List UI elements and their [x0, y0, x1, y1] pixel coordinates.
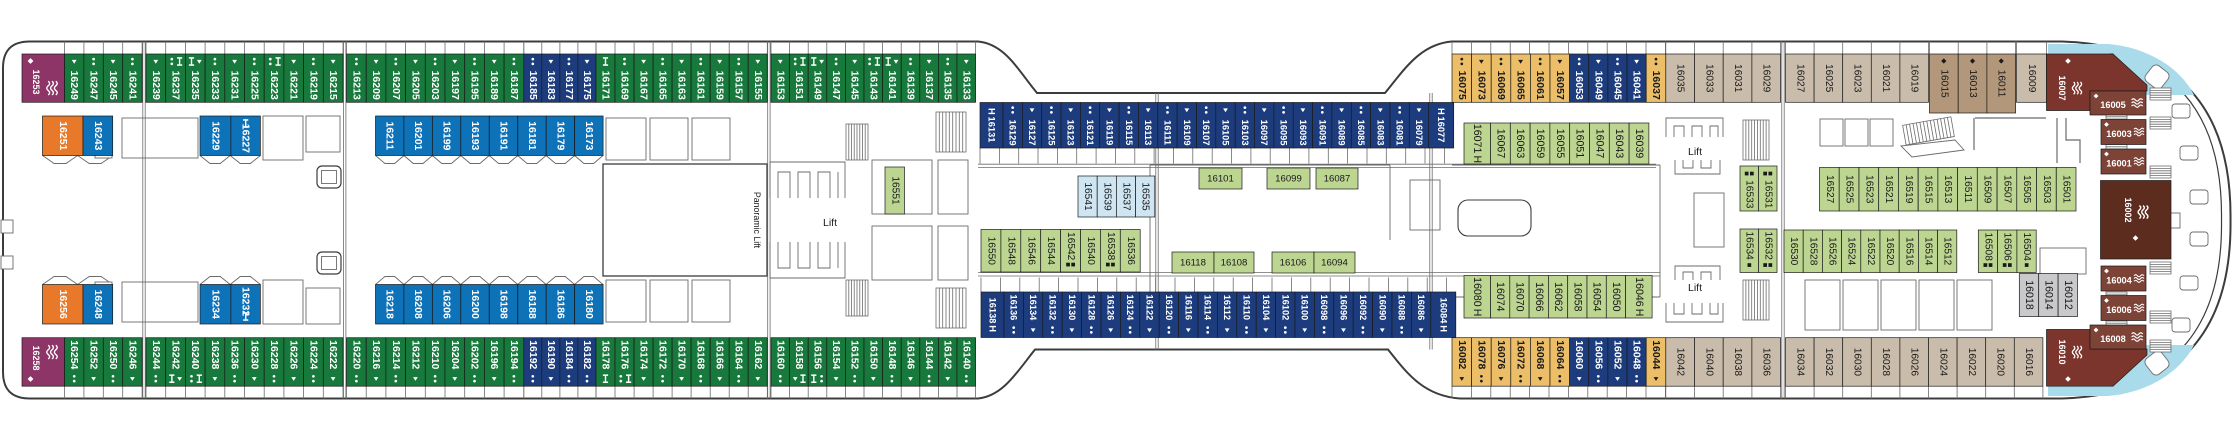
svg-text:16060: 16060 [1573, 340, 1585, 369]
svg-text:16056: 16056 [1592, 340, 1604, 369]
svg-text:16513: 16513 [1942, 175, 1953, 204]
svg-text:16023: 16023 [1852, 64, 1863, 93]
svg-text:16127: 16127 [1027, 120, 1037, 146]
svg-text:16041: 16041 [1631, 71, 1643, 100]
svg-text:16174: 16174 [638, 340, 650, 369]
svg-text:16126: 16126 [1106, 294, 1116, 320]
svg-text:16035: 16035 [1675, 64, 1686, 93]
svg-text:16098: 16098 [1319, 294, 1329, 320]
svg-text:16248: 16248 [92, 290, 104, 319]
svg-text:16534: 16534 [1744, 232, 1755, 261]
svg-text:16146: 16146 [905, 340, 917, 369]
svg-text:16066: 16066 [1533, 282, 1545, 312]
svg-text:16176: 16176 [619, 340, 631, 369]
svg-text:16548: 16548 [1005, 237, 1016, 266]
svg-text:16196: 16196 [488, 340, 500, 369]
svg-text:16080 H: 16080 H [1471, 277, 1483, 316]
svg-text:16536: 16536 [1125, 237, 1136, 266]
svg-text:16192: 16192 [527, 340, 539, 369]
svg-text:16200: 16200 [469, 290, 481, 319]
svg-text:16152: 16152 [849, 340, 861, 369]
svg-text:16076: 16076 [1495, 340, 1507, 369]
svg-text:16015: 16015 [1938, 69, 1949, 98]
svg-text:16120: 16120 [1164, 294, 1174, 320]
svg-text:16099: 16099 [1275, 174, 1302, 185]
svg-text:16002: 16002 [2123, 197, 2133, 222]
svg-text:16167: 16167 [638, 71, 650, 100]
svg-text:16143: 16143 [867, 71, 879, 100]
svg-text:16016: 16016 [2023, 348, 2034, 377]
svg-text:16009: 16009 [2026, 64, 2037, 93]
svg-text:16156: 16156 [812, 340, 824, 369]
svg-text:16078: 16078 [1475, 340, 1487, 369]
svg-text:16241: 16241 [126, 71, 138, 100]
svg-text:16044: 16044 [1650, 340, 1662, 369]
svg-text:16088: 16088 [1397, 294, 1407, 320]
svg-text:16166: 16166 [714, 340, 726, 369]
svg-text:16229: 16229 [209, 121, 221, 150]
svg-text:16074: 16074 [1494, 282, 1506, 312]
svg-text:16243: 16243 [92, 121, 104, 150]
svg-text:16158: 16158 [793, 340, 805, 369]
svg-text:16206: 16206 [441, 290, 453, 319]
svg-text:16182: 16182 [581, 340, 593, 369]
svg-text:16095: 16095 [1279, 120, 1289, 146]
svg-text:16102: 16102 [1280, 294, 1290, 320]
svg-text:16091: 16091 [1317, 120, 1327, 146]
svg-text:16228: 16228 [268, 340, 280, 369]
svg-text:16164: 16164 [733, 340, 745, 369]
svg-text:16073: 16073 [1475, 71, 1487, 100]
svg-text:16240: 16240 [189, 340, 201, 369]
svg-text:16067: 16067 [1494, 129, 1506, 159]
svg-text:16082: 16082 [1456, 340, 1468, 369]
svg-text:16086: 16086 [1416, 294, 1426, 320]
svg-text:16012: 16012 [2062, 280, 2074, 310]
svg-text:16237: 16237 [170, 71, 182, 100]
svg-text:16159: 16159 [714, 71, 726, 100]
svg-text:16132: 16132 [1048, 294, 1058, 320]
svg-text:16063: 16063 [1514, 129, 1526, 159]
svg-text:16222: 16222 [327, 340, 339, 369]
svg-text:16068: 16068 [1534, 340, 1546, 369]
svg-text:16108: 16108 [1221, 258, 1248, 269]
svg-text:16045: 16045 [1612, 71, 1624, 100]
svg-text:16055: 16055 [1554, 129, 1566, 159]
svg-text:16190: 16190 [545, 340, 557, 369]
svg-text:16106: 16106 [1280, 258, 1307, 269]
svg-text:16144: 16144 [923, 340, 935, 369]
svg-text:16198: 16198 [498, 290, 510, 319]
svg-text:16135: 16135 [942, 71, 954, 100]
svg-text:16230: 16230 [248, 340, 260, 369]
svg-text:16236: 16236 [229, 340, 241, 369]
svg-text:16083: 16083 [1375, 120, 1385, 146]
svg-text:16202: 16202 [469, 340, 481, 369]
svg-text:16180: 16180 [583, 290, 595, 319]
svg-text:16256: 16256 [57, 290, 69, 319]
svg-text:16113: 16113 [1143, 120, 1153, 145]
svg-text:16134: 16134 [1028, 294, 1038, 321]
svg-text:16523: 16523 [1863, 175, 1874, 204]
svg-text:16029: 16029 [1761, 64, 1772, 93]
svg-text:16188: 16188 [526, 290, 538, 319]
svg-text:16504: 16504 [2021, 233, 2032, 262]
svg-text:16507: 16507 [2001, 175, 2012, 204]
svg-text:16506: 16506 [2002, 233, 2013, 262]
svg-text:16521: 16521 [1883, 175, 1894, 204]
svg-text:16524: 16524 [1846, 237, 1857, 266]
svg-text:16226: 16226 [288, 340, 300, 369]
svg-text:16211: 16211 [384, 121, 396, 150]
svg-text:16250: 16250 [107, 340, 119, 369]
svg-text:16039: 16039 [1633, 129, 1645, 159]
svg-text:16224: 16224 [307, 340, 319, 369]
svg-text:H 16131: H 16131 [987, 108, 997, 142]
svg-text:16207: 16207 [390, 71, 402, 100]
svg-text:16514: 16514 [1923, 237, 1934, 266]
svg-text:16061: 16061 [1534, 71, 1546, 100]
svg-text:16199: 16199 [441, 121, 453, 150]
svg-text:16546: 16546 [1025, 237, 1036, 266]
svg-text:16251: 16251 [57, 121, 69, 150]
svg-text:16157: 16157 [733, 71, 745, 100]
svg-text:Lift: Lift [1688, 146, 1702, 158]
svg-text:16141: 16141 [886, 71, 898, 100]
svg-text:16137: 16137 [923, 71, 935, 100]
svg-text:16169: 16169 [619, 71, 631, 100]
svg-text:16025: 16025 [1823, 64, 1834, 93]
svg-text:16245: 16245 [107, 71, 119, 100]
svg-text:16550: 16550 [986, 237, 997, 266]
svg-text:16184: 16184 [563, 340, 575, 369]
svg-text:16030: 16030 [1852, 348, 1863, 377]
svg-text:16139: 16139 [905, 71, 917, 100]
svg-text:16084 H: 16084 H [1438, 298, 1448, 333]
svg-text:16071 H: 16071 H [1471, 124, 1483, 163]
svg-text:16186: 16186 [554, 290, 566, 319]
svg-text:16129: 16129 [1008, 120, 1018, 146]
svg-text:16072: 16072 [1515, 340, 1527, 369]
svg-text:16087: 16087 [1324, 174, 1351, 185]
svg-text:16101: 16101 [1207, 174, 1234, 185]
svg-text:16022: 16022 [1966, 348, 1977, 377]
svg-text:16104: 16104 [1261, 294, 1271, 321]
svg-text:16181: 16181 [526, 121, 538, 150]
svg-text:16522: 16522 [1865, 237, 1876, 266]
svg-text:16014: 16014 [2042, 280, 2054, 310]
svg-text:16124: 16124 [1125, 294, 1135, 321]
svg-text:16054: 16054 [1591, 282, 1603, 312]
svg-text:16501: 16501 [2061, 175, 2072, 204]
svg-text:16079: 16079 [1414, 120, 1424, 146]
svg-text:16059: 16059 [1534, 129, 1546, 159]
svg-text:16231: 16231 [229, 71, 241, 100]
svg-text:16195: 16195 [469, 71, 481, 100]
svg-text:16100: 16100 [1300, 294, 1310, 320]
svg-text:16097: 16097 [1259, 120, 1269, 146]
svg-text:16010: 16010 [2057, 339, 2067, 364]
svg-text:16138 H: 16138 H [988, 298, 998, 333]
svg-text:16235: 16235 [189, 71, 201, 100]
svg-text:16111: 16111 [1163, 120, 1173, 145]
svg-text:16175: 16175 [581, 71, 593, 100]
svg-text:16115: 16115 [1124, 120, 1134, 145]
svg-text:16197: 16197 [449, 71, 461, 100]
svg-text:16049: 16049 [1592, 71, 1604, 100]
svg-text:16220: 16220 [350, 340, 362, 369]
svg-text:16027: 16027 [1794, 64, 1805, 93]
svg-text:16539: 16539 [1101, 182, 1112, 211]
svg-text:16252: 16252 [88, 340, 100, 369]
svg-text:16540: 16540 [1085, 237, 1096, 266]
svg-text:16528: 16528 [1807, 237, 1818, 266]
svg-text:16147: 16147 [830, 71, 842, 100]
svg-text:16242: 16242 [170, 340, 182, 369]
svg-text:16058: 16058 [1571, 282, 1583, 312]
svg-text:H 16077: H 16077 [1436, 108, 1446, 142]
svg-text:16515: 16515 [1923, 175, 1934, 204]
svg-text:16034: 16034 [1794, 348, 1805, 377]
svg-text:16238: 16238 [209, 340, 221, 369]
svg-text:16122: 16122 [1145, 294, 1155, 320]
svg-text:16160: 16160 [774, 340, 786, 369]
svg-text:16075: 16075 [1456, 71, 1468, 100]
svg-text:16001: 16001 [2106, 159, 2132, 169]
svg-text:16234: 16234 [209, 290, 221, 319]
svg-text:16161: 16161 [695, 71, 707, 100]
svg-text:16223: 16223 [268, 71, 280, 100]
svg-text:16194: 16194 [508, 340, 520, 369]
svg-text:16183: 16183 [545, 71, 557, 100]
svg-text:16116: 16116 [1183, 295, 1193, 320]
svg-text:16107: 16107 [1201, 120, 1211, 146]
svg-text:16214: 16214 [390, 340, 402, 369]
svg-text:16119: 16119 [1104, 120, 1114, 145]
svg-text:16133: 16133 [960, 71, 972, 100]
svg-text:16178: 16178 [600, 340, 612, 369]
svg-text:16232: 16232 [240, 287, 252, 316]
svg-text:16258: 16258 [31, 345, 41, 370]
svg-text:16254: 16254 [68, 340, 80, 369]
svg-text:16551: 16551 [889, 176, 900, 205]
svg-text:16527: 16527 [1824, 175, 1835, 204]
svg-text:16020: 16020 [1995, 348, 2006, 377]
svg-text:16042: 16042 [1675, 348, 1686, 377]
svg-text:16145: 16145 [849, 71, 861, 100]
svg-text:16193: 16193 [469, 121, 481, 150]
svg-text:16173: 16173 [583, 121, 595, 150]
svg-text:16542: 16542 [1065, 232, 1076, 261]
svg-text:16110: 16110 [1242, 295, 1252, 320]
svg-text:16069: 16069 [1495, 71, 1507, 100]
svg-text:16148: 16148 [886, 340, 898, 369]
svg-text:16537: 16537 [1121, 182, 1132, 211]
svg-text:16203: 16203 [429, 71, 441, 100]
svg-text:16532: 16532 [1762, 232, 1773, 261]
svg-text:16189: 16189 [488, 71, 500, 100]
svg-text:16011: 16011 [1996, 70, 2007, 98]
svg-text:16052: 16052 [1612, 340, 1624, 369]
svg-text:16505: 16505 [2021, 175, 2032, 204]
svg-text:16244: 16244 [150, 340, 162, 369]
svg-text:16201: 16201 [412, 121, 424, 150]
svg-text:16215: 16215 [327, 71, 339, 100]
svg-text:16004: 16004 [2106, 276, 2132, 286]
svg-text:16013: 16013 [1967, 69, 1978, 98]
svg-text:16535: 16535 [1140, 182, 1151, 211]
svg-text:16151: 16151 [793, 71, 805, 100]
svg-text:16213: 16213 [350, 71, 362, 100]
svg-text:16165: 16165 [657, 71, 669, 100]
svg-text:16168: 16168 [695, 340, 707, 369]
svg-text:16149: 16149 [812, 71, 824, 100]
svg-text:16533: 16533 [1744, 180, 1755, 209]
svg-text:16118: 16118 [1180, 258, 1206, 269]
svg-text:16216: 16216 [370, 340, 382, 369]
svg-text:16239: 16239 [150, 71, 162, 100]
svg-text:16249: 16249 [68, 71, 80, 100]
svg-text:16208: 16208 [412, 290, 424, 319]
svg-text:16520: 16520 [1884, 237, 1895, 266]
svg-text:16062: 16062 [1552, 282, 1564, 312]
svg-text:16105: 16105 [1221, 120, 1231, 146]
svg-text:16503: 16503 [2041, 175, 2052, 204]
svg-text:16021: 16021 [1880, 64, 1891, 93]
svg-text:16003: 16003 [2106, 129, 2132, 139]
svg-text:16210: 16210 [429, 340, 441, 369]
svg-text:16046 H: 16046 H [1633, 277, 1645, 316]
svg-text:16036: 16036 [1761, 348, 1772, 377]
svg-text:16005: 16005 [2100, 100, 2126, 110]
svg-text:16516: 16516 [1903, 237, 1914, 266]
svg-text:16096: 16096 [1339, 294, 1349, 320]
svg-text:16163: 16163 [676, 71, 688, 100]
svg-text:16538: 16538 [1105, 232, 1116, 261]
svg-text:16253: 16253 [31, 69, 41, 94]
svg-text:16247: 16247 [88, 71, 100, 100]
svg-text:16233: 16233 [209, 71, 221, 100]
svg-text:16070: 16070 [1514, 282, 1526, 312]
svg-text:16204: 16204 [449, 340, 461, 369]
svg-text:16109: 16109 [1182, 120, 1192, 146]
svg-text:16526: 16526 [1827, 237, 1838, 266]
svg-text:16089: 16089 [1337, 120, 1347, 146]
svg-text:16541: 16541 [1082, 182, 1093, 211]
svg-text:16026: 16026 [1909, 348, 1920, 377]
svg-text:16171: 16171 [600, 71, 612, 100]
svg-text:16530: 16530 [1788, 237, 1799, 266]
svg-text:16008: 16008 [2100, 334, 2126, 344]
svg-text:16018: 16018 [2023, 280, 2035, 310]
svg-text:16225: 16225 [248, 71, 260, 100]
svg-text:16179: 16179 [554, 121, 566, 150]
svg-text:Panoramic Lift: Panoramic Lift [752, 192, 762, 249]
svg-text:16028: 16028 [1880, 348, 1891, 377]
svg-text:16019: 16019 [1909, 64, 1920, 93]
svg-text:16043: 16043 [1613, 129, 1625, 159]
svg-text:16185: 16185 [527, 71, 539, 100]
svg-text:16128: 16128 [1086, 294, 1096, 320]
svg-text:16112: 16112 [1222, 295, 1232, 320]
svg-text:16162: 16162 [752, 340, 764, 369]
svg-text:16227: 16227 [240, 124, 252, 153]
svg-text:16121: 16121 [1085, 120, 1095, 146]
svg-text:16544: 16544 [1045, 237, 1056, 266]
svg-text:16508: 16508 [1983, 233, 1994, 262]
svg-text:16053: 16053 [1573, 71, 1585, 100]
svg-text:16155: 16155 [752, 71, 764, 100]
svg-text:16065: 16065 [1515, 71, 1527, 100]
svg-text:16085: 16085 [1356, 120, 1366, 146]
svg-text:16081: 16081 [1395, 120, 1405, 146]
svg-text:16123: 16123 [1066, 120, 1076, 146]
svg-text:16064: 16064 [1554, 340, 1566, 369]
svg-text:16114: 16114 [1203, 295, 1213, 321]
svg-text:16170: 16170 [676, 340, 688, 369]
svg-text:16037: 16037 [1650, 71, 1662, 100]
svg-text:16205: 16205 [409, 71, 421, 100]
svg-text:16221: 16221 [288, 71, 300, 100]
svg-text:16092: 16092 [1358, 294, 1368, 320]
svg-text:16172: 16172 [657, 340, 669, 369]
svg-text:16140: 16140 [960, 340, 972, 369]
svg-text:16007: 16007 [2057, 75, 2067, 100]
svg-text:16511: 16511 [1962, 175, 1973, 203]
svg-text:16038: 16038 [1732, 348, 1743, 377]
svg-text:16090: 16090 [1377, 294, 1387, 320]
svg-text:16142: 16142 [942, 340, 954, 369]
svg-text:16093: 16093 [1298, 120, 1308, 146]
svg-text:16218: 16218 [384, 290, 396, 319]
svg-text:16006: 16006 [2106, 305, 2132, 315]
svg-text:Lift: Lift [823, 217, 837, 229]
svg-text:16057: 16057 [1554, 71, 1566, 100]
svg-text:16048: 16048 [1631, 340, 1643, 369]
svg-text:16509: 16509 [1982, 175, 1993, 204]
svg-text:16032: 16032 [1823, 348, 1834, 377]
svg-text:16246: 16246 [126, 340, 138, 369]
svg-text:16187: 16187 [508, 71, 520, 100]
svg-text:16051: 16051 [1574, 129, 1586, 159]
svg-text:16525: 16525 [1844, 175, 1855, 204]
svg-text:16154: 16154 [830, 340, 842, 369]
svg-text:16150: 16150 [867, 340, 879, 369]
svg-text:16209: 16209 [370, 71, 382, 100]
svg-text:16103: 16103 [1240, 120, 1250, 146]
svg-text:16125: 16125 [1046, 120, 1056, 146]
svg-text:16136: 16136 [1009, 294, 1019, 320]
svg-text:16191: 16191 [498, 121, 510, 150]
svg-text:16177: 16177 [563, 71, 575, 100]
svg-text:16519: 16519 [1903, 175, 1914, 204]
svg-text:Lift: Lift [1688, 282, 1702, 294]
svg-text:16130: 16130 [1067, 294, 1077, 320]
svg-text:16212: 16212 [409, 340, 421, 369]
svg-text:16219: 16219 [307, 71, 319, 100]
svg-text:16040: 16040 [1703, 348, 1714, 377]
svg-text:16033: 16033 [1703, 64, 1714, 93]
svg-text:16512: 16512 [1942, 237, 1953, 266]
svg-text:16024: 16024 [1937, 348, 1948, 377]
svg-text:16031: 16031 [1732, 64, 1743, 93]
svg-text:16531: 16531 [1762, 180, 1773, 209]
svg-text:16153: 16153 [774, 71, 786, 100]
svg-text:16094: 16094 [1321, 258, 1348, 269]
svg-text:16050: 16050 [1610, 282, 1622, 312]
svg-text:16047: 16047 [1593, 129, 1605, 159]
